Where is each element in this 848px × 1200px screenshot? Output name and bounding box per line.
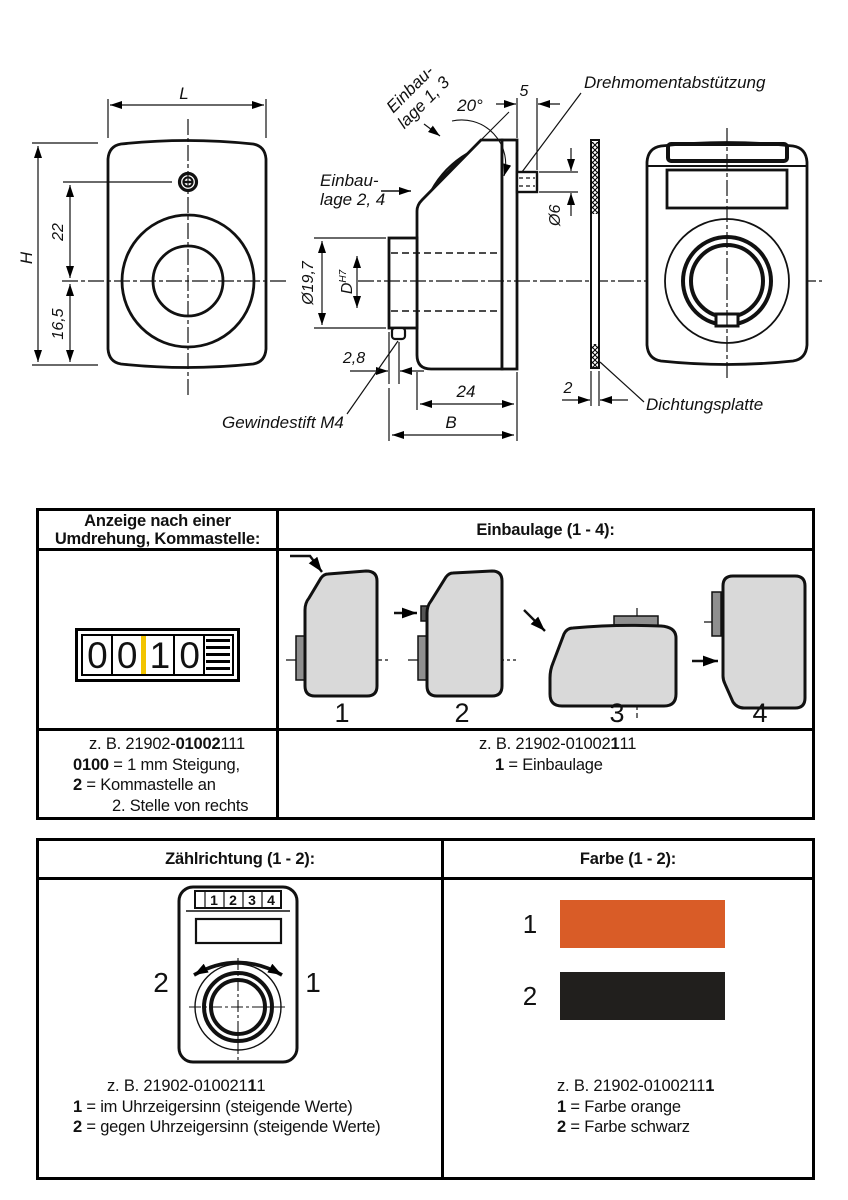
svg-text:2: 2 xyxy=(454,698,469,728)
t2-footer-right: z. B. 21902-01002111 1 = Farbe orange 2 … xyxy=(557,1076,714,1138)
label-D-H7: DH7 xyxy=(338,269,356,294)
label-gewindestift: Gewindestift M4 xyxy=(222,413,344,432)
color-swatch-black xyxy=(560,972,725,1020)
label-einbaulage-2-4: Einbau-lage 2, 4 xyxy=(320,171,385,209)
label-2-8: 2,8 xyxy=(342,350,365,367)
color-number: 1 xyxy=(522,909,538,940)
label-5: 5 xyxy=(520,83,529,100)
t2-footer-left: z. B. 21902-01002111 1 = im Uhrzeigersin… xyxy=(73,1076,380,1138)
front-view xyxy=(62,119,288,397)
label-L: L xyxy=(179,84,188,103)
t1-body-einbaulage: 1 2 3 4 xyxy=(279,551,812,731)
order-example: z. B. 21902-01002111 xyxy=(107,1076,380,1097)
color-swatch-orange xyxy=(560,900,725,948)
knurl-stripes-icon xyxy=(206,639,230,671)
torque-pin xyxy=(517,172,537,192)
t1-footer-right: z. B. 21902-01002111 1 = Einbaulage xyxy=(279,731,812,817)
counter-digit: 0 xyxy=(113,636,141,674)
table-anzeige-einbaulage: Anzeige nach einer Umdrehung, Kommastell… xyxy=(36,508,815,820)
order-example: z. B. 21902-01002111 xyxy=(557,1076,714,1097)
svg-text:2: 2 xyxy=(229,892,237,908)
label-drehmomentabstuetzung: Drehmomentabstützung xyxy=(584,73,766,92)
t2-header-left: Zählrichtung (1 - 2): xyxy=(39,841,444,880)
t1-footer-left: z. B. 21902-01002111 0100 = 1 mm Steigun… xyxy=(39,731,279,817)
t1-body-counter: 0 0 1 0 xyxy=(39,551,279,731)
svg-text:1: 1 xyxy=(210,892,218,908)
order-example: z. B. 21902-01002111 xyxy=(89,734,276,755)
counter-display: 0 0 1 0 xyxy=(75,628,240,682)
t1-header-left: Anzeige nach einer Umdrehung, Kommastell… xyxy=(39,511,279,551)
t2-body-zaehlrichtung: 1 2 3 4 2 1 z. B. 21902-01002111 1 = im … xyxy=(39,880,444,1177)
t2-body-farbe: 1 2 z. B. 21902-01002111 1 = Farbe orang… xyxy=(444,880,812,1177)
digit-separator xyxy=(203,636,205,674)
label-24: 24 xyxy=(456,382,476,401)
label-dichtungsplatte: Dichtungsplatte xyxy=(646,395,763,414)
label-16-5: 16,5 xyxy=(50,308,67,339)
direction-2-label: 2 xyxy=(153,967,169,998)
color-option-1: 1 xyxy=(522,900,725,948)
label-B: B xyxy=(445,413,456,432)
zaehlrichtung-device: 1 2 3 4 2 1 xyxy=(39,880,441,1075)
color-number: 2 xyxy=(522,981,538,1012)
catalog-page: L H 22 16,5 xyxy=(0,0,848,1200)
label-dia6: Ø6 xyxy=(547,205,564,227)
position-2 xyxy=(394,571,516,696)
side-view xyxy=(389,112,537,369)
label-22: 22 xyxy=(50,223,67,242)
direction-1-label: 1 xyxy=(305,967,321,998)
counter-digit: 0 xyxy=(175,636,203,674)
svg-text:3: 3 xyxy=(609,698,624,728)
label-H: H xyxy=(17,251,36,264)
back-view xyxy=(647,128,807,380)
label-20deg: 20° xyxy=(456,96,483,115)
counter-digit: 0 xyxy=(83,636,111,674)
dim-L xyxy=(108,99,266,138)
seal-plate-view xyxy=(591,140,599,368)
svg-text:4: 4 xyxy=(752,698,767,728)
position-4 xyxy=(692,576,809,708)
position-1 xyxy=(286,556,391,696)
label-dia19-7: Ø19,7 xyxy=(300,260,317,306)
t1-header-right: Einbaulage (1 - 4): xyxy=(279,511,812,551)
color-option-2: 2 xyxy=(522,972,725,1020)
table-zaehlrichtung-farbe: Zählrichtung (1 - 2): Farbe (1 - 2): xyxy=(36,838,815,1180)
label-einbaulage-1-3: Einbau-lage 1, 3 xyxy=(380,59,453,132)
svg-text:4: 4 xyxy=(267,892,275,908)
position-3 xyxy=(524,608,676,718)
technical-drawing: L H 22 16,5 xyxy=(0,0,848,470)
einbaulage-positions: 1 2 3 4 xyxy=(279,551,809,728)
svg-text:3: 3 xyxy=(248,892,256,908)
counter-digit: 1 xyxy=(146,636,174,674)
t2-header-right: Farbe (1 - 2): xyxy=(444,841,812,880)
label-2: 2 xyxy=(563,380,573,397)
order-example: z. B. 21902-01002111 xyxy=(479,734,812,755)
svg-text:1: 1 xyxy=(334,698,349,728)
